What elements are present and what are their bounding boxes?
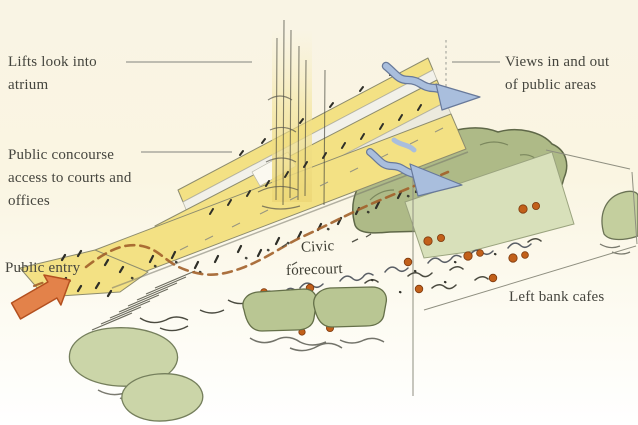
label-public-concourse: Public concourse access to courts and of…	[8, 144, 133, 213]
label-civic: Civic	[300, 235, 335, 260]
diagram-canvas: Lifts look into atrium Public concourse …	[0, 0, 638, 425]
label-left-bank-cafes: Left bank cafes	[509, 286, 638, 309]
label-views: Views in and out of public areas	[505, 51, 625, 97]
bush-bottom-left-2	[122, 374, 203, 421]
label-public-entry: Public entry	[5, 257, 125, 280]
label-forecourt: forecourt	[286, 258, 344, 283]
label-lifts-atrium: Lifts look into atrium	[8, 51, 114, 97]
